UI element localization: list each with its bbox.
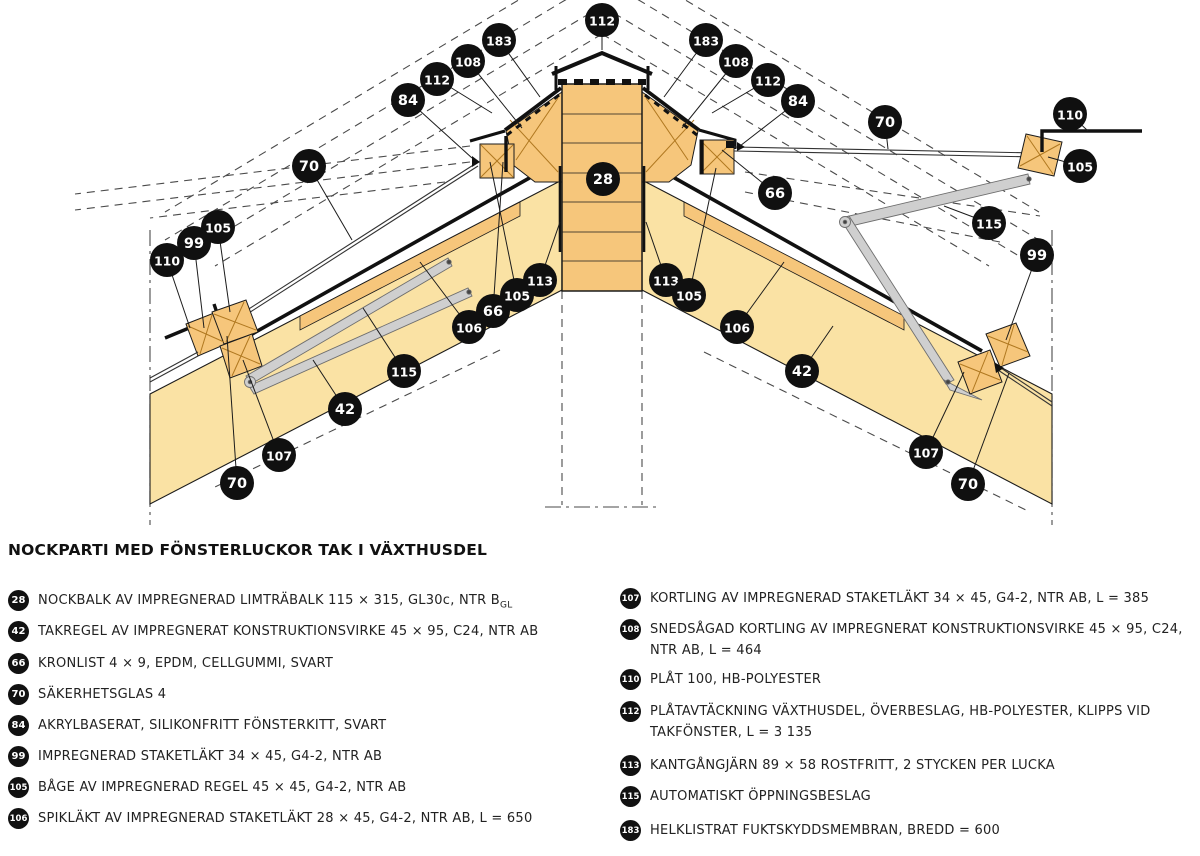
callout-number: 84 — [398, 93, 418, 109]
kortling-108-right — [642, 92, 698, 182]
callout-number: 42 — [792, 364, 812, 380]
callout-number: 108 — [455, 55, 481, 70]
legend-badge-107: 107 — [620, 588, 641, 609]
legend-text-subscript: GL — [500, 601, 513, 611]
legend-text: SPIKLÄKT AV IMPREGNERAD STAKETLÄKT 28 × … — [38, 809, 532, 830]
callout-number: 70 — [958, 477, 978, 493]
legend-badge-113: 113 — [620, 755, 641, 776]
callout-number: 70 — [299, 159, 319, 175]
legend-badge-84: 84 — [8, 715, 29, 736]
callout-number: 106 — [724, 321, 750, 336]
legend-badge-66: 66 — [8, 653, 29, 674]
callout-number: 70 — [875, 115, 895, 131]
legend-text: TAKREGEL AV IMPREGNERAT KONSTRUKTIONSVIR… — [38, 622, 538, 643]
legend-text: SNEDSÅGAD KORTLING AV IMPREGNERAT KONSTR… — [650, 620, 1186, 662]
legend-badge-28: 28 — [8, 590, 29, 611]
legend-item-108: 108SNEDSÅGAD KORTLING AV IMPREGNERAT KON… — [620, 619, 1186, 662]
callout-number: 183 — [693, 34, 719, 49]
legend-item-112: 112PLÅTAVTÄCKNING VÄXTHUSDEL, ÖVERBESLAG… — [620, 701, 1186, 744]
callout-number: 70 — [227, 476, 247, 492]
legend-item-106: 106SPIKLÄKT AV IMPREGNERAD STAKETLÄKT 28… — [8, 808, 583, 830]
legend-badge-70: 70 — [8, 684, 29, 705]
legend-text: AUTOMATISKT ÖPPNINGSBESLAG — [650, 787, 871, 808]
legend-text: NOCKBALK AV IMPREGNERAD LIMTRÄBALK 115 ×… — [38, 591, 512, 613]
callout-number: 115 — [391, 365, 417, 380]
callout-110: 110 — [1053, 97, 1088, 131]
legend-item-113: 113KANTGÅNGJÄRN 89 × 58 ROSTFRITT, 2 STY… — [620, 755, 1186, 777]
callout-28: 28 — [586, 162, 620, 196]
callout-number: 66 — [765, 186, 785, 202]
kitt-84-left — [472, 156, 480, 167]
legend-text: AKRYLBASERAT, SILIKONFRITT FÖNSTERKITT, … — [38, 716, 386, 737]
legend-item-99: 99IMPREGNERAD STAKETLÄKT 34 × 45, G4-2, … — [8, 746, 583, 768]
callout-115: 115 — [944, 206, 1006, 240]
callout-number: 84 — [788, 94, 808, 110]
callout-number: 42 — [335, 402, 355, 418]
legend-text: PLÅTAVTÄCKNING VÄXTHUSDEL, ÖVERBESLAG, H… — [650, 702, 1186, 744]
legend-badge-106: 106 — [8, 808, 29, 829]
ridge-cap-112 — [552, 53, 652, 74]
callout-number: 105 — [676, 289, 702, 304]
legend-badge-108: 108 — [620, 619, 641, 640]
callout-number: 107 — [913, 446, 939, 461]
legend-text: SÄKERHETSGLAS 4 — [38, 685, 166, 706]
callout-number: 110 — [1057, 108, 1083, 123]
legend-item-28: 28NOCKBALK AV IMPREGNERAD LIMTRÄBALK 115… — [8, 590, 583, 613]
legend-text: HELKLISTRAT FUKTSKYDDSMEMBRAN, BREDD = 6… — [650, 821, 1000, 842]
legend-item-115: 115AUTOMATISKT ÖPPNINGSBESLAG — [620, 786, 1186, 808]
callout-number: 105 — [205, 221, 231, 236]
legend-text: KANTGÅNGJÄRN 89 × 58 ROSTFRITT, 2 STYCKE… — [650, 756, 1055, 777]
callout-number: 112 — [755, 74, 781, 89]
callout-number: 105 — [504, 289, 530, 304]
legend-item-84: 84AKRYLBASERAT, SILIKONFRITT FÖNSTERKITT… — [8, 715, 583, 737]
legend-badge-112: 112 — [620, 701, 641, 722]
callout-number: 28 — [593, 172, 613, 188]
legend-badge-99: 99 — [8, 746, 29, 767]
legend-item-66: 66KRONLIST 4 × 9, EPDM, CELLGUMMI, SVART — [8, 653, 583, 675]
roof-ridge-detail-drawing: 1121831081128470105991106610511328106115… — [0, 0, 1200, 532]
legend-text: KRONLIST 4 × 9, EPDM, CELLGUMMI, SVART — [38, 654, 333, 675]
legend-item-42: 42TAKREGEL AV IMPREGNERAT KONSTRUKTIONSV… — [8, 621, 583, 643]
legend-item-70: 70SÄKERHETSGLAS 4 — [8, 684, 583, 706]
callout-number: 66 — [483, 304, 503, 320]
callout-105: 105 — [201, 210, 235, 312]
legend-item-107: 107KORTLING AV IMPREGNERAD STAKETLÄKT 34… — [620, 588, 1186, 610]
callout-112: 112 — [585, 3, 619, 50]
construction-detail-page: { "title": "NOCKPARTI MED FÖNSTERLUCKOR … — [0, 0, 1200, 856]
callout-number: 112 — [589, 14, 615, 29]
glass-70-right-open — [734, 147, 1036, 157]
callout-number: 113 — [527, 274, 553, 289]
callout-number: 108 — [723, 55, 749, 70]
legend-badge-110: 110 — [620, 669, 641, 690]
legend-badge-105: 105 — [8, 777, 29, 798]
callout-99: 99 — [177, 226, 211, 328]
legend-item-183: 183HELKLISTRAT FUKTSKYDDSMEMBRAN, BREDD … — [620, 820, 1186, 842]
callout-number: 110 — [154, 254, 180, 269]
callout-number: 183 — [486, 34, 512, 49]
legend-badge-115: 115 — [620, 786, 641, 807]
callout-66: 66 — [722, 150, 792, 210]
kronlist-66-right-seat — [726, 141, 734, 148]
overbeslag-112-left-edge — [470, 131, 505, 141]
callout-number: 107 — [266, 449, 292, 464]
callout-number: 99 — [184, 236, 204, 252]
callout-108: 108 — [682, 44, 753, 128]
callout-number: 105 — [1067, 160, 1093, 175]
legend-item-105: 105BÅGE AV IMPREGNERAD REGEL 45 × 45, G4… — [8, 777, 583, 799]
legend-text: KORTLING AV IMPREGNERAD STAKETLÄKT 34 × … — [650, 589, 1149, 610]
legend-text: PLÅT 100, HB-POLYESTER — [650, 670, 821, 691]
legend-badge-42: 42 — [8, 621, 29, 642]
callout-number: 99 — [1027, 248, 1047, 264]
roof-right — [642, 88, 1142, 504]
legend-text: IMPREGNERAD STAKETLÄKT 34 × 45, G4-2, NT… — [38, 747, 382, 768]
legend-text: BÅGE AV IMPREGNERAD REGEL 45 × 45, G4-2,… — [38, 778, 406, 799]
legend-item-110: 110PLÅT 100, HB-POLYESTER — [620, 669, 1186, 691]
callout-183: 183 — [664, 23, 723, 97]
drawing-title: NOCKPARTI MED FÖNSTERLUCKOR TAK I VÄXTHU… — [8, 541, 487, 559]
callout-number: 115 — [976, 217, 1002, 232]
legend-badge-183: 183 — [620, 820, 641, 841]
callout-70: 70 — [868, 105, 902, 149]
callout-number: 106 — [456, 321, 482, 336]
callout-number: 112 — [424, 73, 450, 88]
